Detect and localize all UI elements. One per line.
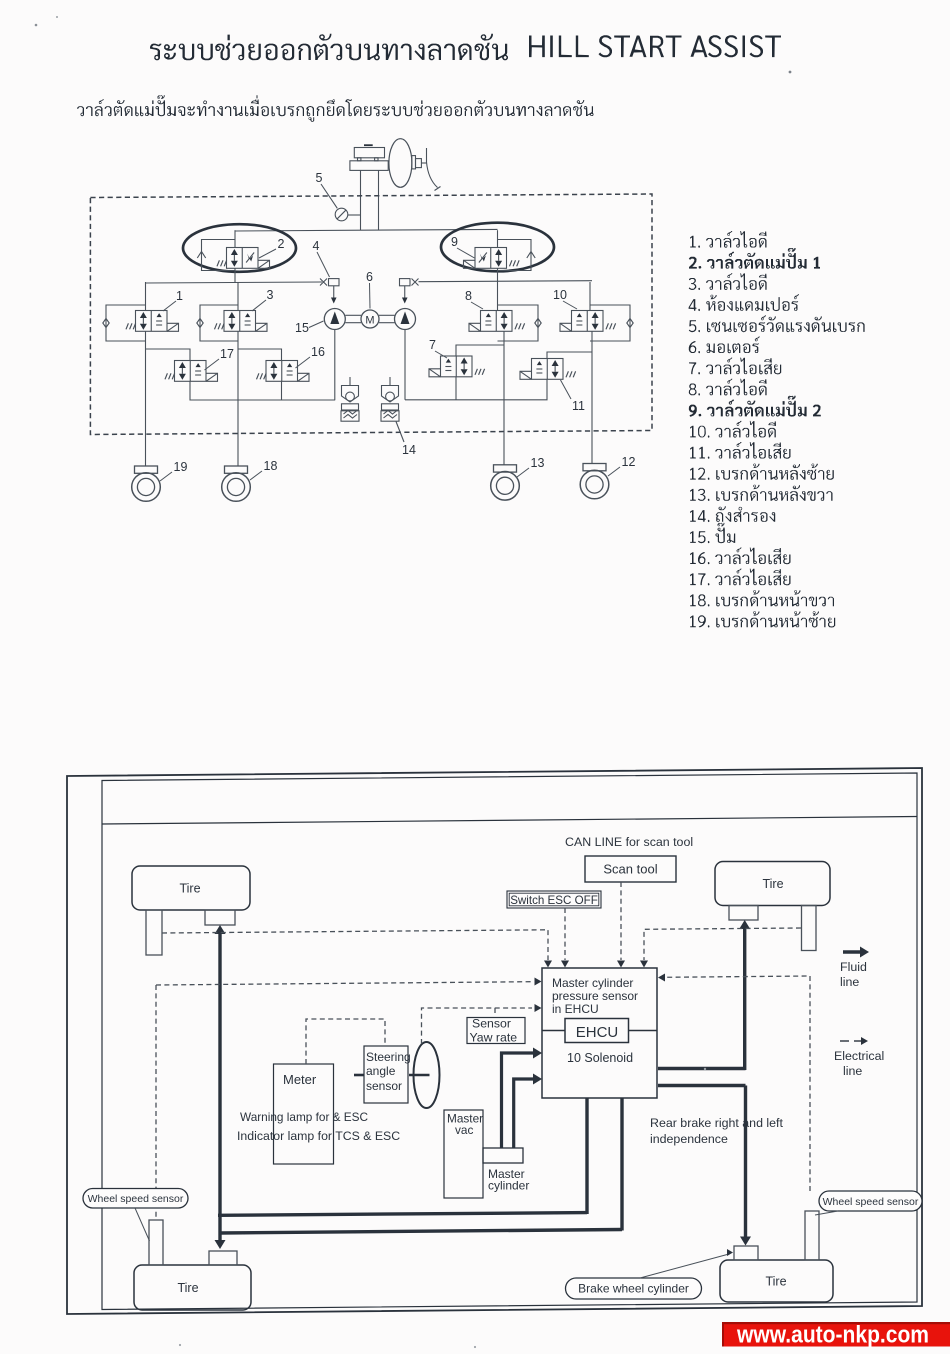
svg-text:Warning lamp for & ESC: Warning lamp for & ESC [240, 1110, 369, 1124]
svg-text:4: 4 [313, 239, 320, 253]
svg-text:5: 5 [316, 171, 323, 185]
svg-text:Electrical: Electrical [834, 1049, 884, 1063]
svg-text:Wheel speed sensor: Wheel speed sensor [823, 1196, 919, 1208]
svg-text:line: line [840, 975, 859, 989]
svg-text:16: 16 [311, 345, 325, 359]
svg-text:10: 10 [553, 288, 567, 302]
svg-text:Tire: Tire [179, 882, 200, 896]
svg-text:Wheel speed sensor: Wheel speed sensor [88, 1193, 184, 1205]
svg-text:Steering: Steering [366, 1050, 411, 1064]
svg-text:www.auto-nkp.com: www.auto-nkp.com [736, 1322, 929, 1349]
svg-text:in EHCU: in EHCU [552, 1002, 599, 1016]
svg-text:10 Solenoid: 10 Solenoid [567, 1051, 633, 1065]
svg-text:M: M [365, 315, 374, 327]
svg-text:Meter: Meter [283, 1072, 317, 1087]
svg-text:Sensor: Sensor [472, 1017, 511, 1031]
svg-text:Yaw rate: Yaw rate [470, 1031, 518, 1045]
svg-text:vac: vac [455, 1123, 473, 1137]
svg-text:CAN LINE for scan tool: CAN LINE for scan tool [565, 835, 693, 849]
svg-text:line: line [843, 1064, 862, 1078]
svg-text:3: 3 [267, 288, 274, 302]
svg-text:2: 2 [278, 237, 285, 251]
svg-text:cylinder: cylinder [488, 1179, 529, 1193]
svg-text:Switch ESC OFF: Switch ESC OFF [510, 894, 598, 907]
svg-text:Scan tool: Scan tool [603, 862, 657, 877]
svg-text:18: 18 [264, 459, 278, 473]
svg-text:7: 7 [429, 338, 436, 352]
svg-text:independence: independence [650, 1132, 728, 1146]
svg-text:8: 8 [465, 289, 472, 303]
svg-text:15: 15 [295, 321, 309, 335]
svg-text:17: 17 [220, 347, 234, 361]
svg-text:pressure sensor: pressure sensor [552, 989, 638, 1003]
svg-text:Brake wheel cylinder: Brake wheel cylinder [578, 1281, 689, 1295]
svg-text:Tire: Tire [177, 1281, 198, 1295]
svg-text:11: 11 [572, 399, 585, 413]
svg-text:sensor: sensor [366, 1079, 402, 1093]
svg-text:12: 12 [622, 455, 636, 469]
svg-text:9: 9 [451, 235, 458, 249]
svg-text:angle: angle [366, 1064, 396, 1078]
svg-text:Rear brake right and left: Rear brake right and left [650, 1116, 783, 1130]
svg-text:EHCU: EHCU [576, 1024, 619, 1041]
svg-text:Master cylinder: Master cylinder [552, 976, 633, 990]
svg-text:Tire: Tire [765, 1275, 786, 1289]
svg-text:Indicator lamp for TCS & ESC: Indicator lamp for TCS & ESC [237, 1129, 400, 1143]
svg-text:6: 6 [366, 270, 373, 284]
svg-text:13: 13 [531, 456, 545, 470]
svg-text:Fluid: Fluid [840, 960, 867, 974]
svg-text:14: 14 [402, 443, 416, 457]
svg-text:1: 1 [176, 289, 183, 303]
svg-text:19: 19 [174, 460, 188, 474]
svg-text:Tire: Tire [762, 877, 783, 891]
